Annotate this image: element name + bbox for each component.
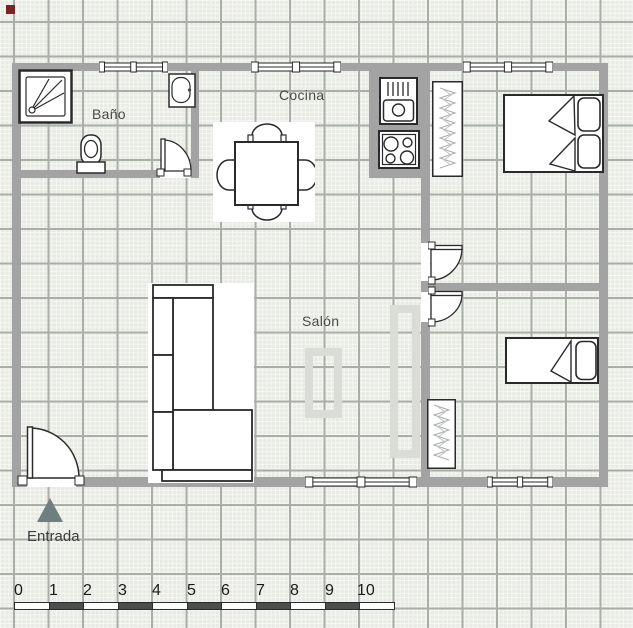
window-bedroom1[interactable] bbox=[463, 61, 553, 73]
ruler-segment bbox=[84, 603, 119, 609]
ruler-segment bbox=[188, 603, 223, 609]
ruler-number: 2 bbox=[83, 582, 92, 600]
entrance-arrow-icon bbox=[37, 498, 63, 522]
ruler-segment bbox=[50, 603, 85, 609]
ruler-number: 7 bbox=[256, 582, 265, 600]
entrance-door[interactable] bbox=[17, 424, 87, 487]
room-label-bathroom: Baño bbox=[92, 106, 126, 122]
shower[interactable] bbox=[18, 69, 73, 124]
room-label-kitchen: Cocina bbox=[279, 87, 324, 103]
ruler-segment bbox=[153, 603, 188, 609]
ruler-number: 6 bbox=[221, 582, 230, 600]
ruler-number: 1 bbox=[49, 582, 58, 600]
ruler-segment bbox=[15, 603, 50, 609]
bedroom2-door[interactable] bbox=[428, 286, 468, 328]
single-bed[interactable] bbox=[505, 337, 599, 384]
scale-ruler-bar bbox=[14, 602, 395, 610]
bathroom-door[interactable] bbox=[155, 135, 197, 178]
stove[interactable] bbox=[378, 130, 420, 169]
floorplan-canvas: Baño Cocina Salón Entrada 0 1 2 3 4 5 6 … bbox=[0, 0, 633, 628]
ghost-shelf-outline[interactable] bbox=[390, 305, 420, 458]
wardrobe-bedroom1[interactable] bbox=[432, 81, 463, 177]
ruler-segment bbox=[119, 603, 154, 609]
ruler-number: 4 bbox=[152, 582, 161, 600]
ruler-segment bbox=[291, 603, 326, 609]
window-bedroom2[interactable] bbox=[487, 476, 553, 488]
window-kitchen[interactable] bbox=[251, 61, 341, 73]
window-living-room[interactable] bbox=[305, 476, 417, 488]
bedroom1-door[interactable] bbox=[428, 240, 468, 286]
room-label-living-room: Salón bbox=[302, 313, 339, 329]
double-bed[interactable] bbox=[503, 94, 604, 173]
dining-table-with-chairs[interactable] bbox=[213, 122, 315, 222]
kitchen-sink[interactable] bbox=[379, 77, 418, 125]
entrance-label: Entrada bbox=[27, 528, 80, 545]
ruler-number: 3 bbox=[118, 582, 127, 600]
ruler-segment bbox=[222, 603, 257, 609]
window-bathroom[interactable] bbox=[99, 61, 168, 73]
washbasin[interactable] bbox=[168, 73, 196, 108]
ruler-segment bbox=[326, 603, 361, 609]
origin-marker bbox=[6, 5, 15, 14]
ghost-coffee-table-outline[interactable] bbox=[305, 348, 342, 418]
ruler-number: 0 bbox=[14, 582, 23, 600]
ruler-number: 10 bbox=[357, 582, 375, 600]
ruler-number: 9 bbox=[325, 582, 334, 600]
ruler-number: 5 bbox=[187, 582, 196, 600]
ruler-segment bbox=[360, 603, 394, 609]
toilet[interactable] bbox=[76, 134, 106, 174]
scale-ruler-numbers: 0 1 2 3 4 5 6 7 8 9 10 bbox=[13, 582, 413, 600]
wall-bedrooms-upper bbox=[421, 71, 430, 243]
ruler-segment bbox=[257, 603, 292, 609]
corner-sofa[interactable] bbox=[148, 283, 254, 483]
wardrobe-bedroom2[interactable] bbox=[427, 399, 456, 469]
ruler-number: 8 bbox=[290, 582, 299, 600]
